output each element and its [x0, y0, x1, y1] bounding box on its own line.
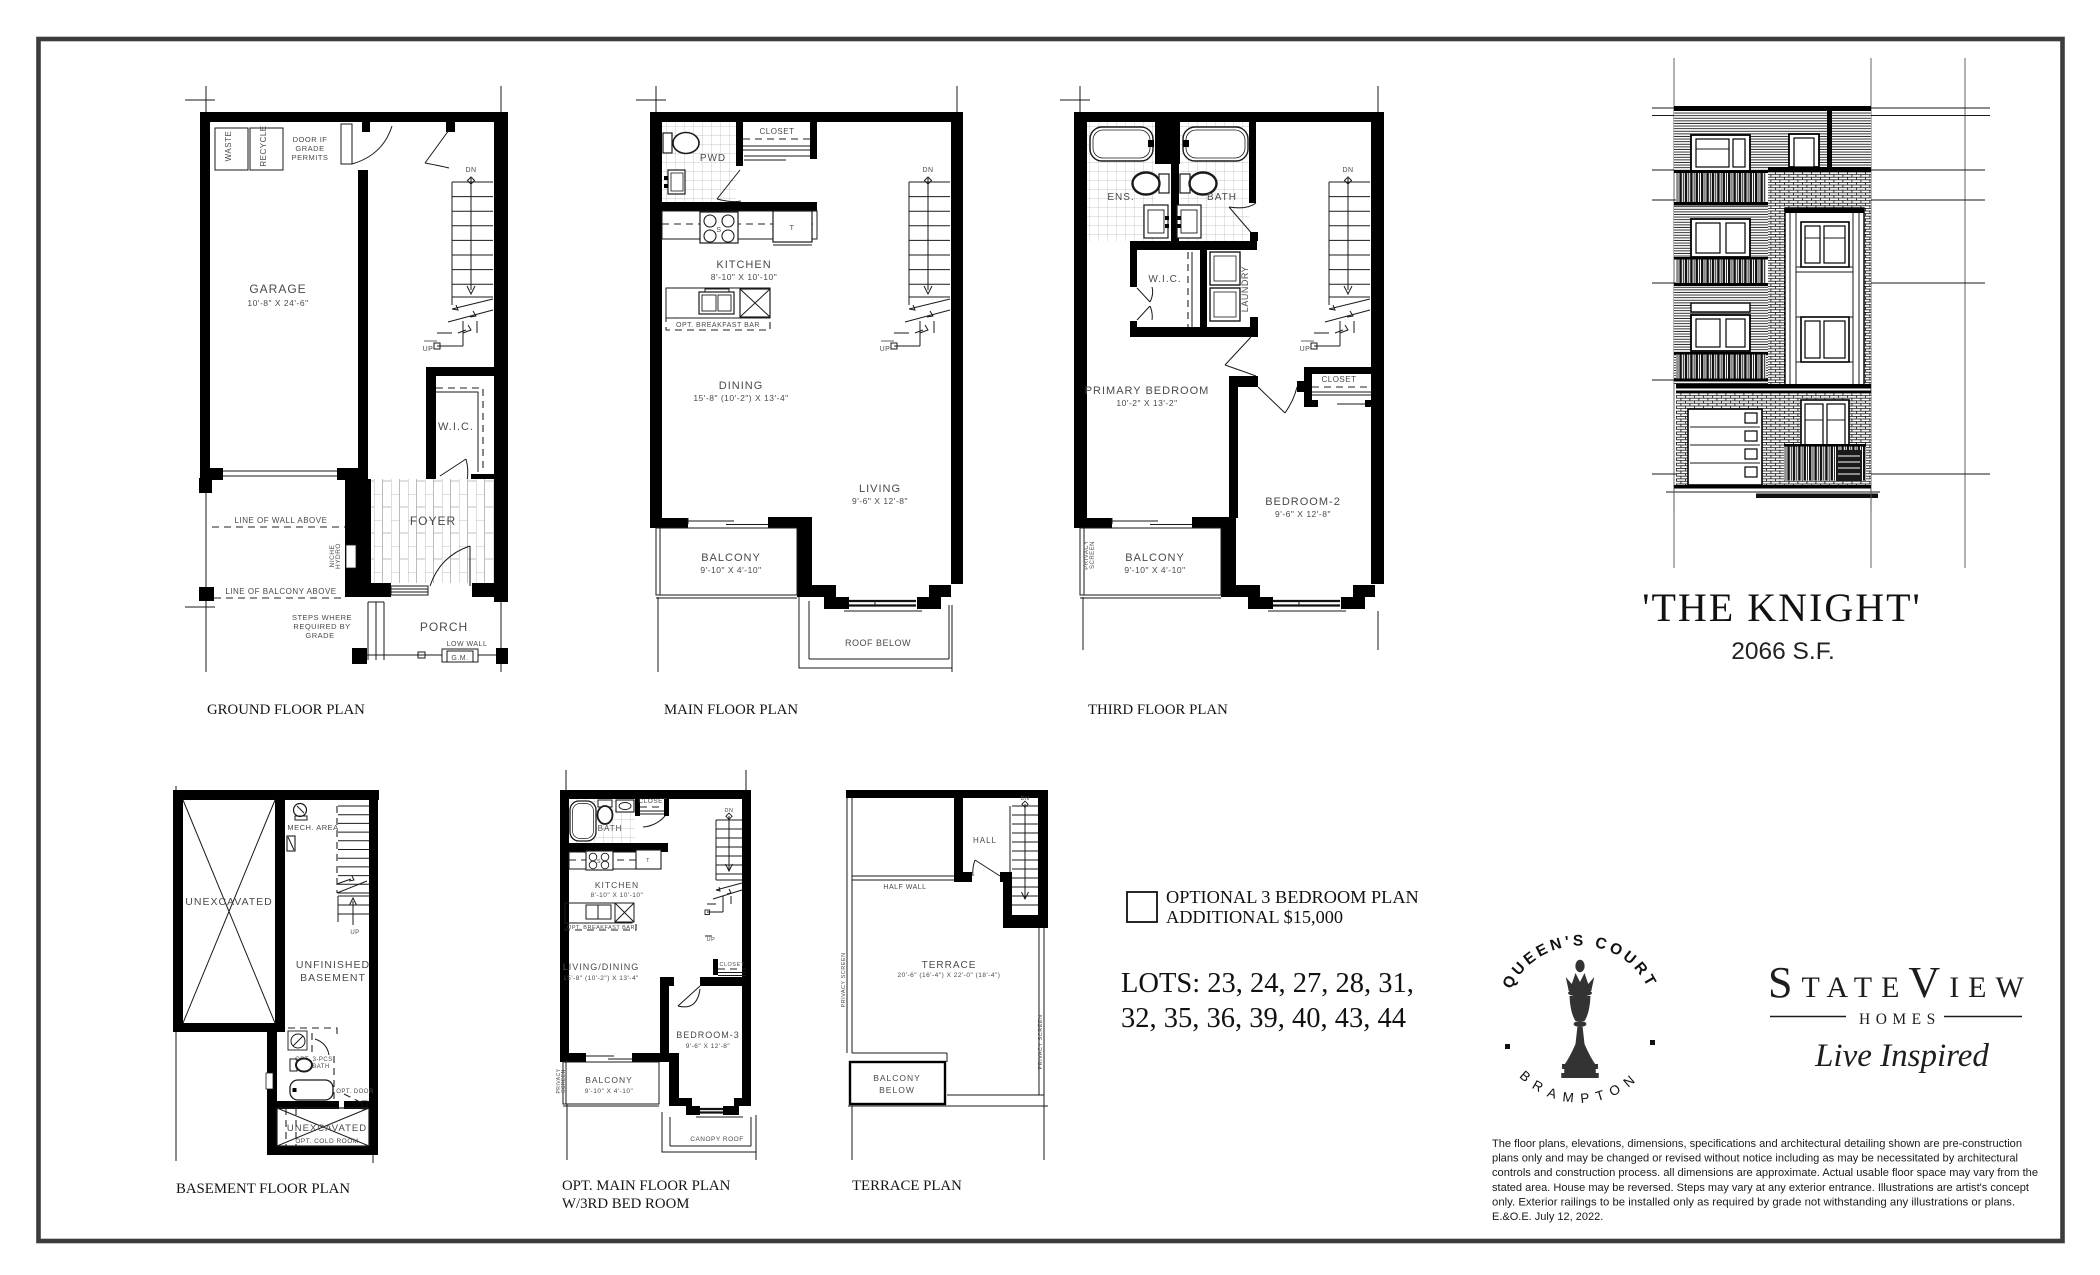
svg-text:NICHE: NICHE [329, 544, 336, 567]
svg-text:9'-6" X 12'-8": 9'-6" X 12'-8" [686, 1043, 731, 1050]
svg-text:PORCH: PORCH [420, 620, 468, 634]
svg-text:UNFINISHED: UNFINISHED [296, 959, 370, 971]
svg-text:8'-10" X 10'-10": 8'-10" X 10'-10" [591, 892, 644, 899]
svg-text:LINE OF WALL ABOVE: LINE OF WALL ABOVE [235, 516, 328, 525]
svg-text:BALCONY: BALCONY [873, 1073, 921, 1083]
svg-text:10'-8" X 24'-6": 10'-8" X 24'-6" [247, 298, 308, 308]
svg-text:GRADE: GRADE [295, 144, 324, 153]
svg-text:RECYCLE: RECYCLE [259, 125, 268, 166]
svg-text:FOYER: FOYER [410, 514, 456, 528]
svg-text:LOTS: 23, 24, 27, 28, 31,: LOTS: 23, 24, 27, 28, 31, [1121, 968, 1414, 999]
svg-text:T: T [790, 225, 795, 232]
svg-text:ROOF BELOW: ROOF BELOW [845, 638, 911, 648]
svg-text:BASEMENT: BASEMENT [300, 972, 366, 984]
svg-text:9'-6" X 12'-8": 9'-6" X 12'-8" [1275, 509, 1331, 519]
svg-text:controls and construction proc: controls and construction process. all d… [1492, 1167, 2038, 1179]
svg-text:OPT. MAIN FLOOR PLAN: OPT. MAIN FLOOR PLAN [562, 1178, 731, 1194]
svg-text:HOMES: HOMES [1859, 1011, 1941, 1028]
svg-text:CLOSET: CLOSET [759, 127, 794, 136]
svg-text:OPT. BREAKFAST BAR: OPT. BREAKFAST BAR [567, 925, 635, 931]
svg-text:S: S [597, 859, 601, 865]
svg-text:CLOSET: CLOSET [1321, 375, 1356, 384]
svg-text:PERMITS: PERMITS [292, 153, 329, 162]
svg-text:UP: UP [707, 937, 716, 943]
svg-text:PRIVACY SCREEN: PRIVACY SCREEN [841, 952, 847, 1007]
svg-text:REQUIRED BY: REQUIRED BY [293, 622, 350, 631]
svg-text:BEDROOM-2: BEDROOM-2 [1265, 496, 1341, 508]
svg-text:GROUND FLOOR PLAN: GROUND FLOOR PLAN [207, 702, 365, 718]
svg-text:8'-10" X 10'-10": 8'-10" X 10'-10" [711, 272, 777, 282]
svg-text:E.&O.E. July 12, 2022.: E.&O.E. July 12, 2022. [1492, 1211, 1603, 1223]
svg-text:Live Inspired: Live Inspired [1814, 1038, 1989, 1074]
svg-text:HALF WALL: HALF WALL [883, 884, 926, 891]
svg-text:W.I.C.: W.I.C. [438, 421, 474, 433]
svg-text:DINING: DINING [719, 380, 764, 392]
svg-text:The floor plans, elevations, d: The floor plans, elevations, dimensions,… [1492, 1138, 2022, 1150]
svg-text:OPT. BREAKFAST BAR: OPT. BREAKFAST BAR [676, 322, 760, 329]
svg-text:W/3RD BED ROOM: W/3RD BED ROOM [562, 1196, 689, 1212]
svg-text:BATH: BATH [1207, 192, 1237, 203]
svg-text:32, 35, 36, 39, 40, 43, 44: 32, 35, 36, 39, 40, 43, 44 [1121, 1003, 1406, 1034]
svg-text:'THE KNIGHT': 'THE KNIGHT' [1642, 585, 1921, 630]
svg-text:10'-2" X 13'-2": 10'-2" X 13'-2" [1116, 398, 1177, 408]
svg-text:PRIVACY SCREEN: PRIVACY SCREEN [1038, 1014, 1044, 1069]
svg-text:T: T [646, 858, 650, 864]
svg-text:BASEMENT FLOOR PLAN: BASEMENT FLOOR PLAN [176, 1181, 350, 1197]
svg-text:GRADE: GRADE [305, 631, 334, 640]
svg-text:SCREEN: SCREEN [561, 1069, 567, 1093]
svg-text:BALCONY: BALCONY [701, 552, 761, 564]
svg-text:UP: UP [350, 930, 359, 936]
svg-text:BATH: BATH [312, 1064, 330, 1070]
svg-text:only. Exterior railings to be: only. Exterior railings to be installed … [1492, 1196, 2015, 1208]
svg-text:20'-6" (16'-4") X 22'-0" (18'-: 20'-6" (16'-4") X 22'-0" (18'-4") [898, 972, 1001, 979]
svg-text:W.I.C.: W.I.C. [1148, 274, 1181, 285]
svg-text:OPT. COLD ROOM: OPT. COLD ROOM [295, 1138, 358, 1145]
svg-text:LIVING: LIVING [859, 483, 901, 495]
svg-text:MECH. AREA: MECH. AREA [287, 823, 338, 832]
svg-text:CLOSET: CLOSET [638, 798, 667, 805]
svg-text:ENS.: ENS. [1107, 192, 1134, 203]
svg-text:LOW WALL: LOW WALL [447, 641, 488, 648]
svg-text:UNEXCAVATED: UNEXCAVATED [287, 1123, 367, 1134]
svg-text:9'-10" X 4'-10": 9'-10" X 4'-10" [585, 1088, 634, 1095]
svg-text:plans only and may be changed: plans only and may be changed or revised… [1492, 1153, 2018, 1165]
svg-text:SCREEN: SCREEN [1090, 541, 1096, 569]
svg-text:TERRACE: TERRACE [922, 960, 977, 971]
svg-text:ADDITIONAL $15,000: ADDITIONAL $15,000 [1166, 907, 1343, 927]
svg-text:9'-10" X 4'-10": 9'-10" X 4'-10" [700, 565, 761, 575]
svg-text:STEPS WHERE: STEPS WHERE [292, 613, 352, 622]
svg-text:GARAGE: GARAGE [249, 282, 306, 296]
svg-text:HYDRO: HYDRO [335, 543, 342, 569]
svg-text:MAIN FLOOR PLAN: MAIN FLOOR PLAN [664, 702, 798, 718]
svg-text:DN: DN [1021, 796, 1030, 802]
svg-text:LINE OF BALCONY ABOVE: LINE OF BALCONY ABOVE [225, 587, 336, 596]
svg-text:2066 S.F.: 2066 S.F. [1731, 638, 1835, 665]
svg-text:LIVING/DINING: LIVING/DINING [563, 962, 640, 972]
svg-text:G.M.: G.M. [451, 655, 468, 662]
svg-text:DN: DN [725, 808, 734, 814]
svg-text:OPT. DOOR: OPT. DOOR [336, 1089, 374, 1095]
svg-text:15'-8" (10'-2") X 13'-4": 15'-8" (10'-2") X 13'-4" [693, 393, 788, 403]
svg-text:stated area. House may be reve: stated area. House may be reversed. Step… [1492, 1182, 2029, 1194]
svg-text:BALCONY: BALCONY [585, 1075, 633, 1085]
svg-text:UP: UP [423, 346, 434, 353]
svg-text:WASTE: WASTE [224, 131, 233, 162]
svg-text:9'-6" X 12'-8": 9'-6" X 12'-8" [852, 496, 908, 506]
svg-text:CANOPY ROOF: CANOPY ROOF [690, 1136, 743, 1143]
svg-text:OPTIONAL 3 BEDROOM PLAN: OPTIONAL 3 BEDROOM PLAN [1166, 887, 1419, 907]
svg-text:BATH: BATH [598, 824, 623, 833]
svg-text:HALL: HALL [973, 836, 997, 845]
svg-text:BEDROOM-3: BEDROOM-3 [676, 1030, 740, 1040]
svg-text:KITCHEN: KITCHEN [595, 880, 639, 890]
svg-text:KITCHEN: KITCHEN [716, 259, 771, 271]
svg-text:PRIMARY BEDROOM: PRIMARY BEDROOM [1085, 385, 1210, 397]
svg-text:TERRACE PLAN: TERRACE PLAN [852, 1178, 962, 1194]
svg-text:15'-8" (10'-2") X 13'-4": 15'-8" (10'-2") X 13'-4" [563, 975, 639, 982]
svg-text:BALCONY: BALCONY [1125, 552, 1185, 564]
svg-text:DOOR IF: DOOR IF [293, 135, 328, 144]
svg-text:CLOSET: CLOSET [719, 962, 744, 968]
svg-text:9'-10" X 4'-10": 9'-10" X 4'-10" [1124, 565, 1185, 575]
svg-text:THIRD FLOOR PLAN: THIRD FLOOR PLAN [1088, 702, 1228, 718]
svg-text:BELOW: BELOW [879, 1085, 915, 1095]
svg-text:LAUNDRY: LAUNDRY [1240, 266, 1250, 312]
svg-text:UNEXCAVATED: UNEXCAVATED [185, 896, 272, 908]
svg-text:DN: DN [465, 167, 476, 174]
svg-text:S: S [716, 227, 721, 234]
svg-text:PWD: PWD [700, 153, 726, 164]
